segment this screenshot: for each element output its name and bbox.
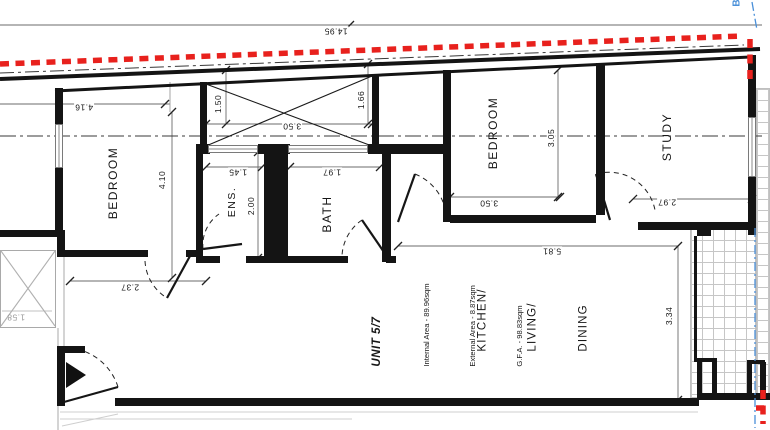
room-label-bedroom2: BEDROOM [486,97,500,170]
wall-segment [264,150,288,258]
section-marker-b: B [732,0,743,7]
unit-name: UNIT 5/7 [371,283,383,366]
dim-bedroom1-width: 4.16 [74,103,94,112]
entrance-arrow [66,362,86,388]
wall-segment [748,177,756,235]
dim-shaft-width: 3.50 [282,122,302,131]
wall-segment [57,352,65,406]
wall-segment [62,250,148,257]
window-ens [208,145,258,153]
dim-bedroom2-height: 3.05 [547,128,556,148]
window-bath [288,145,368,153]
dim-study-width: 2.97 [657,198,677,207]
boundary-centre-line [0,45,744,73]
unit-info-block: UNIT 5/7 Internal Area - 89.96sqm Extern… [335,283,561,366]
parapet-wall-inner [55,57,750,91]
wall-segment [694,236,697,362]
unit-gfa: G.F.A. - 98.83sqm [515,283,525,366]
room-label-study: STUDY [660,113,674,161]
dim-kitchen-height: 3.34 [665,306,674,326]
terrace-tiles-strip [756,88,770,400]
wall-segment [748,55,756,117]
dim-kitchen-width: 5.81 [542,247,562,256]
wall-segment [450,215,596,223]
unit-internal-area: Internal Area - 89.96sqm [422,283,432,366]
dim-bedroom2-width: 3.50 [479,199,499,208]
wall-segment [288,256,348,263]
room-label-bath: BATH [320,195,334,232]
unit-external-area: External Area - 8.87sqm [468,283,478,366]
void-cross [206,76,372,146]
dim-stair-shaft: 1.58 [6,313,26,322]
wall-segment [382,150,391,262]
wall-segment [386,256,396,263]
dim-ens-height: 2.00 [247,196,256,216]
wall-segment [638,222,752,230]
dim-shaft-left: 1.50 [214,94,223,114]
dim-overall-width: 14.95 [323,27,348,36]
wall-segment [196,256,220,263]
wall-segment [443,70,451,222]
wall-segment [596,63,605,215]
floor-plan: BEDROOM ENS. BATH BEDROOM STUDY KITCHEN/… [0,0,770,430]
wall-segment [200,82,207,148]
room-label-bedroom1: BEDROOM [106,147,120,220]
ghost-lines [60,412,698,426]
kitchen-line-3: DINING [576,288,590,351]
wall-segment [368,144,448,154]
dim-hall-width: 2.37 [120,283,140,292]
parapet-wall-outer [0,49,760,79]
wall-segment [55,168,63,236]
dim-shaft-right: 1.66 [357,90,366,110]
wall-segment [196,150,203,258]
wall-segment [697,393,770,400]
wall-segment [697,228,711,236]
room-label-ens: ENS. [226,187,238,218]
wall-segment [55,88,63,124]
dim-bedroom1-height: 4.10 [158,170,167,190]
wall-segment [186,250,203,257]
wall-segment [115,398,699,406]
window-bedroom1 [55,124,63,168]
wall-segment [0,230,62,237]
dim-bath-width: 1.97 [322,168,342,177]
wall-segment [246,256,288,263]
window-study [748,117,756,177]
dim-ens-width: 1.45 [228,168,248,177]
wall-segment [372,74,379,148]
